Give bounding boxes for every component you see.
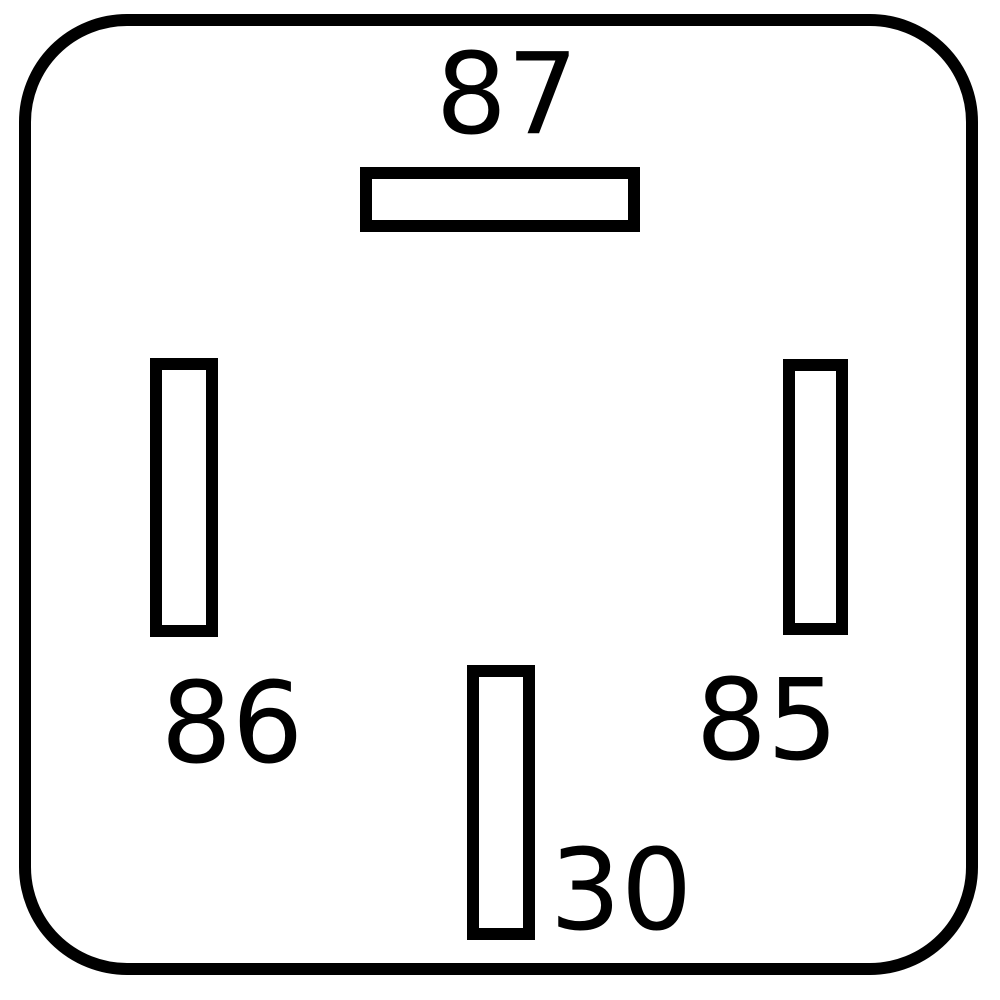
- pin-label-30: 30: [550, 826, 693, 956]
- pin-terminal-87: [366, 173, 634, 226]
- diagram-canvas: 87 86 85 30: [0, 0, 1000, 1000]
- pin-label-87: 87: [436, 30, 579, 160]
- pin-terminal-30: [473, 671, 529, 934]
- pin-terminal-85: [789, 365, 842, 629]
- pin-label-85: 85: [696, 656, 839, 786]
- pin-terminal-86: [156, 364, 212, 631]
- pin-label-86: 86: [161, 659, 304, 789]
- relay-pinout-diagram: 87 86 85 30: [0, 0, 1000, 1000]
